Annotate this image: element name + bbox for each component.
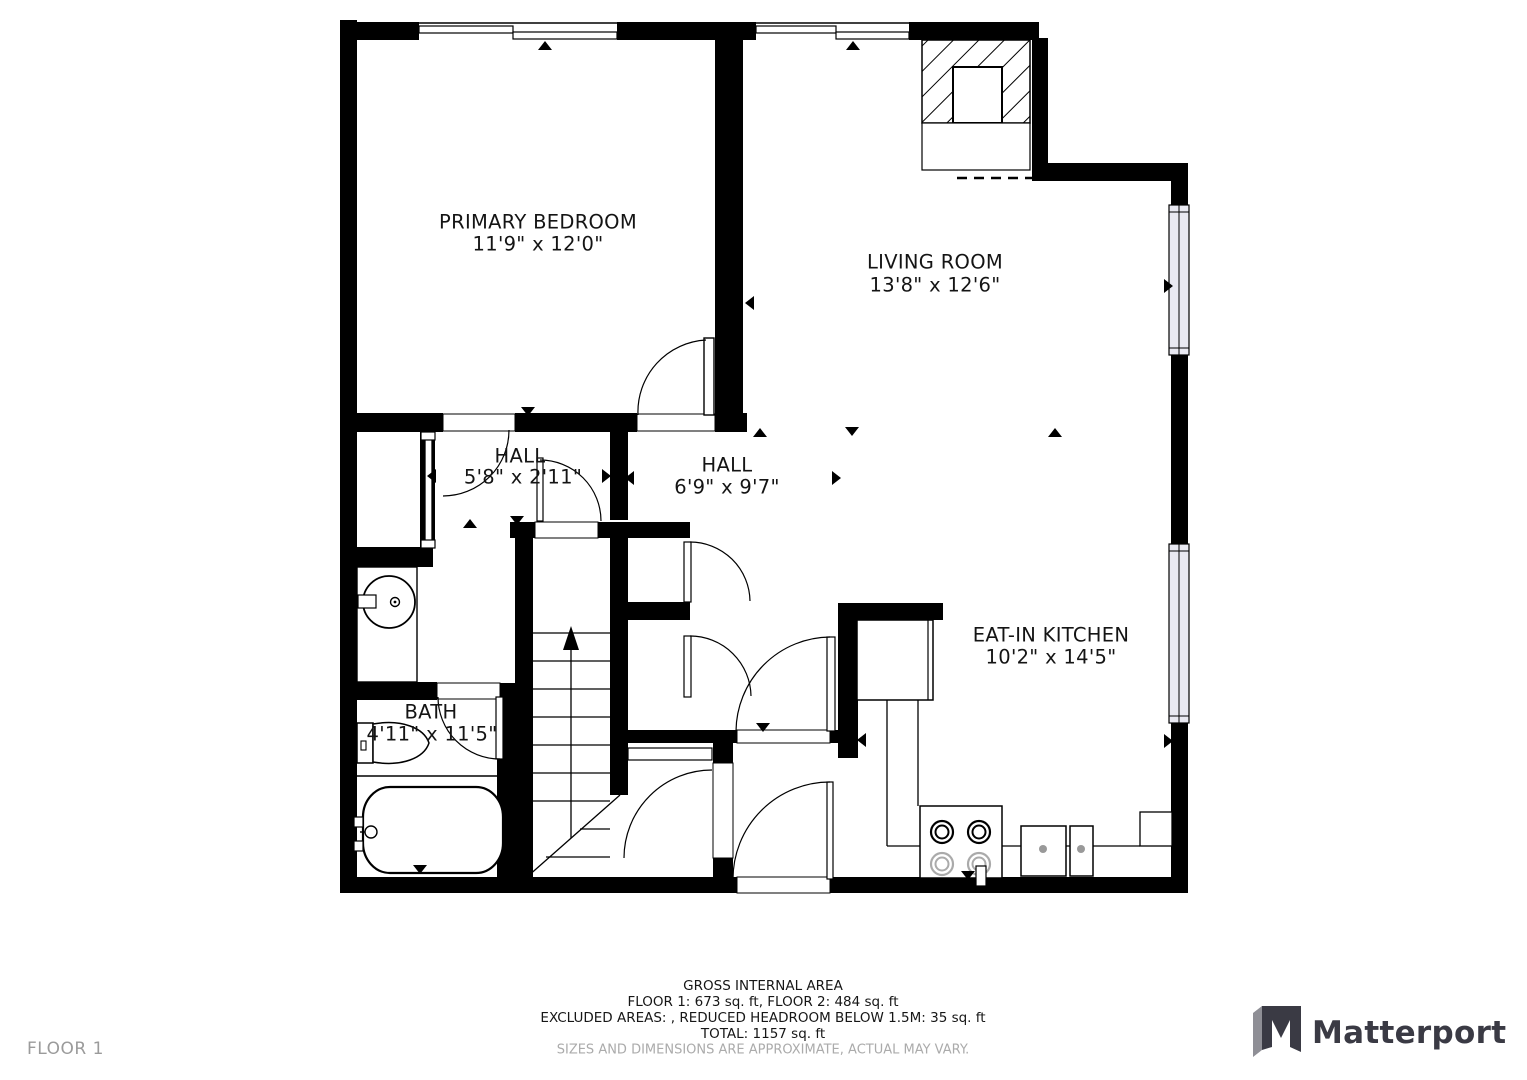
door-entry — [733, 782, 833, 879]
door-closet-lower — [684, 636, 751, 697]
window-living-2 — [836, 32, 909, 39]
opening-bath — [437, 683, 500, 699]
opening-vestibule — [713, 763, 733, 858]
opening-front-door — [737, 877, 830, 893]
window-living-1 — [756, 26, 836, 33]
fireplace-hearth — [922, 123, 1030, 170]
fireplace — [922, 40, 1032, 178]
room-label-living-room: LIVING ROOM — [867, 251, 1003, 274]
stair-up-arrow-icon — [563, 626, 579, 650]
stair-cut-line — [527, 795, 620, 877]
opening-bedroom-hall — [443, 414, 515, 431]
door-kitchen — [736, 637, 835, 731]
room-label-hall-1: HALL — [495, 445, 546, 468]
vanity-sink — [357, 567, 417, 682]
window-living-right — [1169, 205, 1189, 355]
window-kitchen-right — [1169, 544, 1189, 723]
room-label-eat-in-kitchen: EAT-IN KITCHEN — [973, 624, 1130, 647]
room-label-hall-2: HALL — [702, 454, 753, 477]
matterport-logo-icon — [1251, 1004, 1305, 1062]
bathtub — [354, 787, 503, 873]
window-bedroom-2 — [513, 32, 617, 39]
room-dims-hall-2: 6'9" x 9'7" — [674, 476, 780, 499]
room-dims-hall-1: 5'8" x 2'11" — [464, 466, 582, 489]
opening-bedroom-door — [637, 414, 715, 431]
floorplan-page: PRIMARY BEDROOM 11'9" x 12'0" LIVING ROO… — [0, 0, 1527, 1080]
door-vestibule — [624, 748, 712, 858]
total-area-line: TOTAL: 1157 sq. ft — [701, 1026, 825, 1042]
opening-kitchen — [737, 730, 830, 743]
matterport-logo-text: Matterport — [1312, 1015, 1506, 1051]
stove — [920, 806, 1002, 878]
floorplan-drawing — [0, 0, 1527, 1080]
opening-stair-top — [535, 522, 598, 538]
excluded-areas-line: EXCLUDED AREAS: , REDUCED HEADROOM BELOW… — [540, 1010, 985, 1026]
stairs — [527, 626, 620, 877]
walls — [340, 20, 1188, 893]
disclaimer-line: SIZES AND DIMENSIONS ARE APPROXIMATE, AC… — [557, 1043, 970, 1058]
room-dims-bath: 4'11" x 11'5" — [367, 723, 498, 746]
room-label-bath: BATH — [405, 701, 458, 724]
refrigerator — [857, 620, 933, 700]
window-bedroom-1 — [419, 26, 513, 33]
kitchen-cabinet — [1140, 812, 1172, 846]
room-dims-eat-in-kitchen: 10'2" x 14'5" — [986, 646, 1117, 669]
door-closet-upper — [684, 542, 750, 602]
door-bedroom — [638, 338, 714, 415]
room-dims-living-room: 13'8" x 12'6" — [870, 274, 1001, 297]
windows — [419, 23, 1189, 723]
floor-label: FLOOR 1 — [27, 1039, 104, 1059]
gross-internal-area-title: GROSS INTERNAL AREA — [683, 978, 843, 994]
room-label-primary-bedroom: PRIMARY BEDROOM — [439, 211, 637, 234]
room-dims-primary-bedroom: 11'9" x 12'0" — [473, 233, 604, 256]
fireplace-firebox — [953, 67, 1002, 123]
floor-areas-line: FLOOR 1: 673 sq. ft, FLOOR 2: 484 sq. ft — [627, 994, 898, 1010]
